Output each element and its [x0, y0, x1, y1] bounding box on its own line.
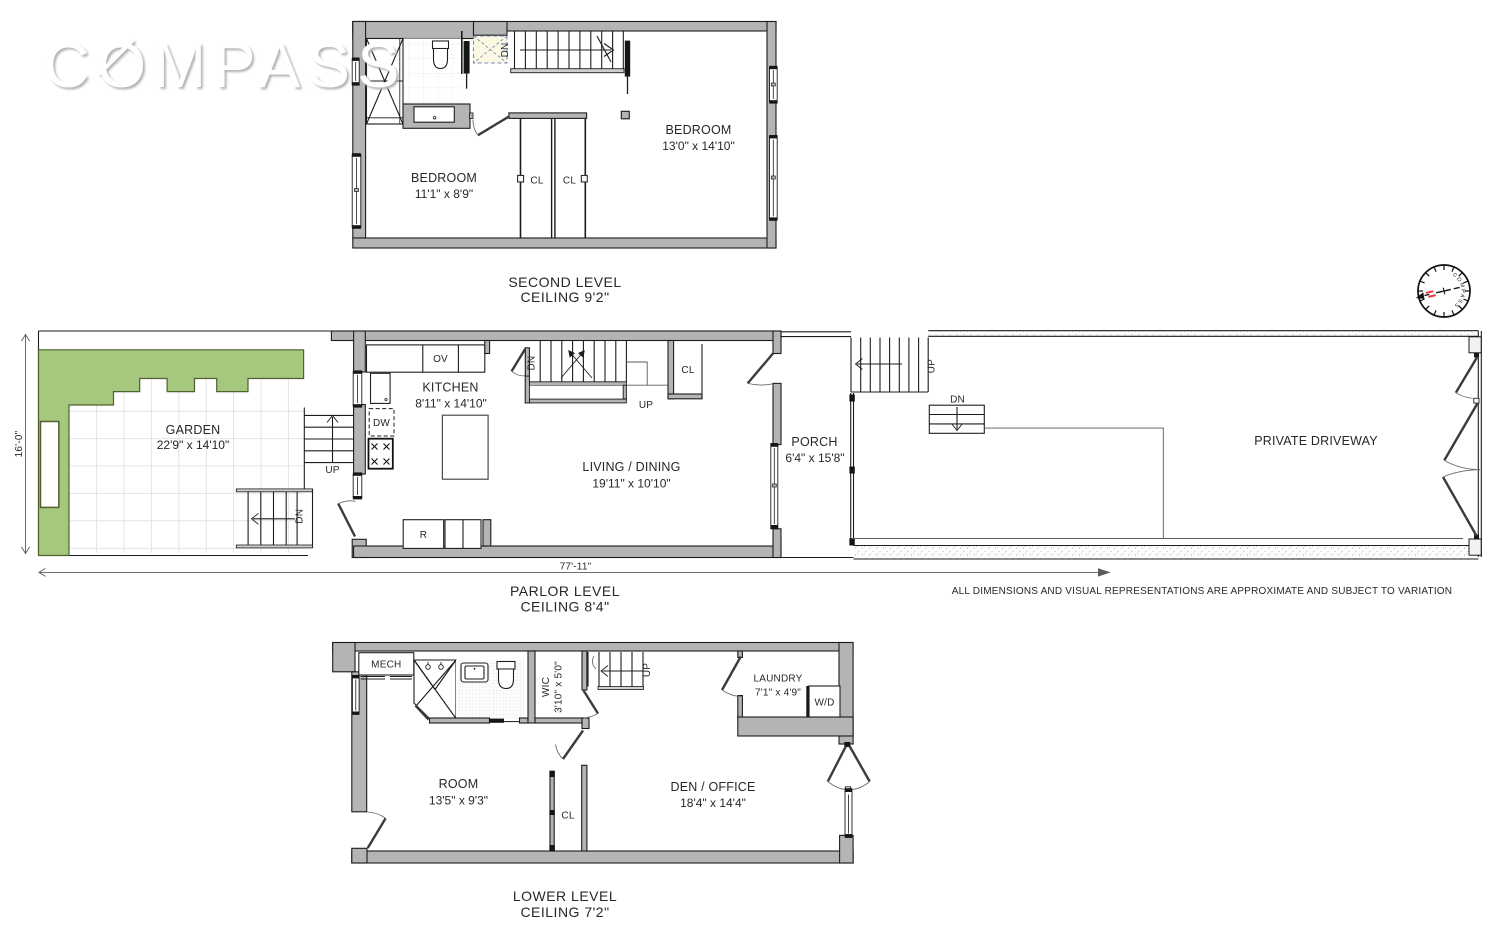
svg-text:OV: OV — [433, 354, 448, 365]
svg-text:LOWER LEVEL: LOWER LEVEL — [513, 888, 617, 904]
svg-text:GARDEN: GARDEN — [166, 423, 221, 437]
svg-text:CL: CL — [681, 365, 694, 376]
svg-text:R: R — [420, 530, 427, 541]
svg-text:11'1" x 8'9": 11'1" x 8'9" — [415, 187, 473, 201]
svg-text:PORCH: PORCH — [791, 435, 837, 449]
svg-text:WIC: WIC — [541, 677, 552, 697]
svg-text:UP: UP — [325, 465, 339, 476]
svg-text:DW: DW — [373, 418, 390, 429]
svg-text:UP: UP — [927, 359, 938, 373]
svg-text:PRIVATE DRIVEWAY: PRIVATE DRIVEWAY — [1254, 434, 1378, 448]
svg-text:CL: CL — [530, 176, 543, 187]
svg-text:8'11" x 14'10": 8'11" x 14'10" — [415, 397, 487, 411]
svg-text:W/D: W/D — [814, 698, 834, 709]
svg-text:CL: CL — [563, 176, 576, 187]
svg-text:BEDROOM: BEDROOM — [411, 171, 477, 185]
svg-text:6'4" x 15'8": 6'4" x 15'8" — [785, 451, 844, 465]
svg-text:UP: UP — [639, 400, 653, 411]
svg-text:19'11" x 10'10": 19'11" x 10'10" — [592, 477, 670, 491]
svg-text:DN: DN — [295, 509, 306, 524]
svg-text:DN: DN — [950, 395, 965, 406]
svg-text:3'10" x 5'0": 3'10" x 5'0" — [554, 661, 565, 713]
svg-text:ROOM: ROOM — [439, 777, 479, 791]
svg-text:CL: CL — [561, 811, 574, 822]
svg-text:CEILING 9'2": CEILING 9'2" — [520, 289, 609, 305]
svg-text:7'1" x 4'9": 7'1" x 4'9" — [755, 688, 801, 699]
svg-text:CEILING 7'2": CEILING 7'2" — [520, 904, 609, 920]
svg-text:UP: UP — [642, 663, 653, 677]
svg-text:KITCHEN: KITCHEN — [422, 381, 478, 395]
svg-text:PARLOR LEVEL: PARLOR LEVEL — [510, 583, 620, 599]
svg-text:SECOND LEVEL: SECOND LEVEL — [508, 274, 621, 290]
svg-text:ALL DIMENSIONS AND VISUAL REPR: ALL DIMENSIONS AND VISUAL REPRESENTATION… — [952, 586, 1452, 597]
svg-text:CEILING 8'4": CEILING 8'4" — [520, 599, 609, 615]
svg-text:22'9" x 14'10": 22'9" x 14'10" — [157, 438, 230, 452]
svg-text:BEDROOM: BEDROOM — [666, 123, 732, 137]
svg-text:LIVING / DINING: LIVING / DINING — [582, 460, 680, 474]
svg-text:DEN / OFFICE: DEN / OFFICE — [670, 780, 755, 794]
svg-text:13'0" x 14'10": 13'0" x 14'10" — [662, 139, 735, 153]
svg-text:LAUNDRY: LAUNDRY — [753, 674, 802, 685]
svg-text:18'4" x 14'4": 18'4" x 14'4" — [680, 796, 746, 810]
svg-text:77'-11": 77'-11" — [560, 562, 592, 573]
svg-text:COMPASS: COMPASS — [44, 31, 407, 101]
svg-text:DN: DN — [527, 356, 538, 371]
svg-text:DN: DN — [500, 43, 511, 58]
svg-text:13'5" x 9'3": 13'5" x 9'3" — [429, 794, 488, 808]
svg-text:16'-0": 16'-0" — [14, 430, 25, 457]
svg-text:MECH: MECH — [371, 660, 401, 671]
